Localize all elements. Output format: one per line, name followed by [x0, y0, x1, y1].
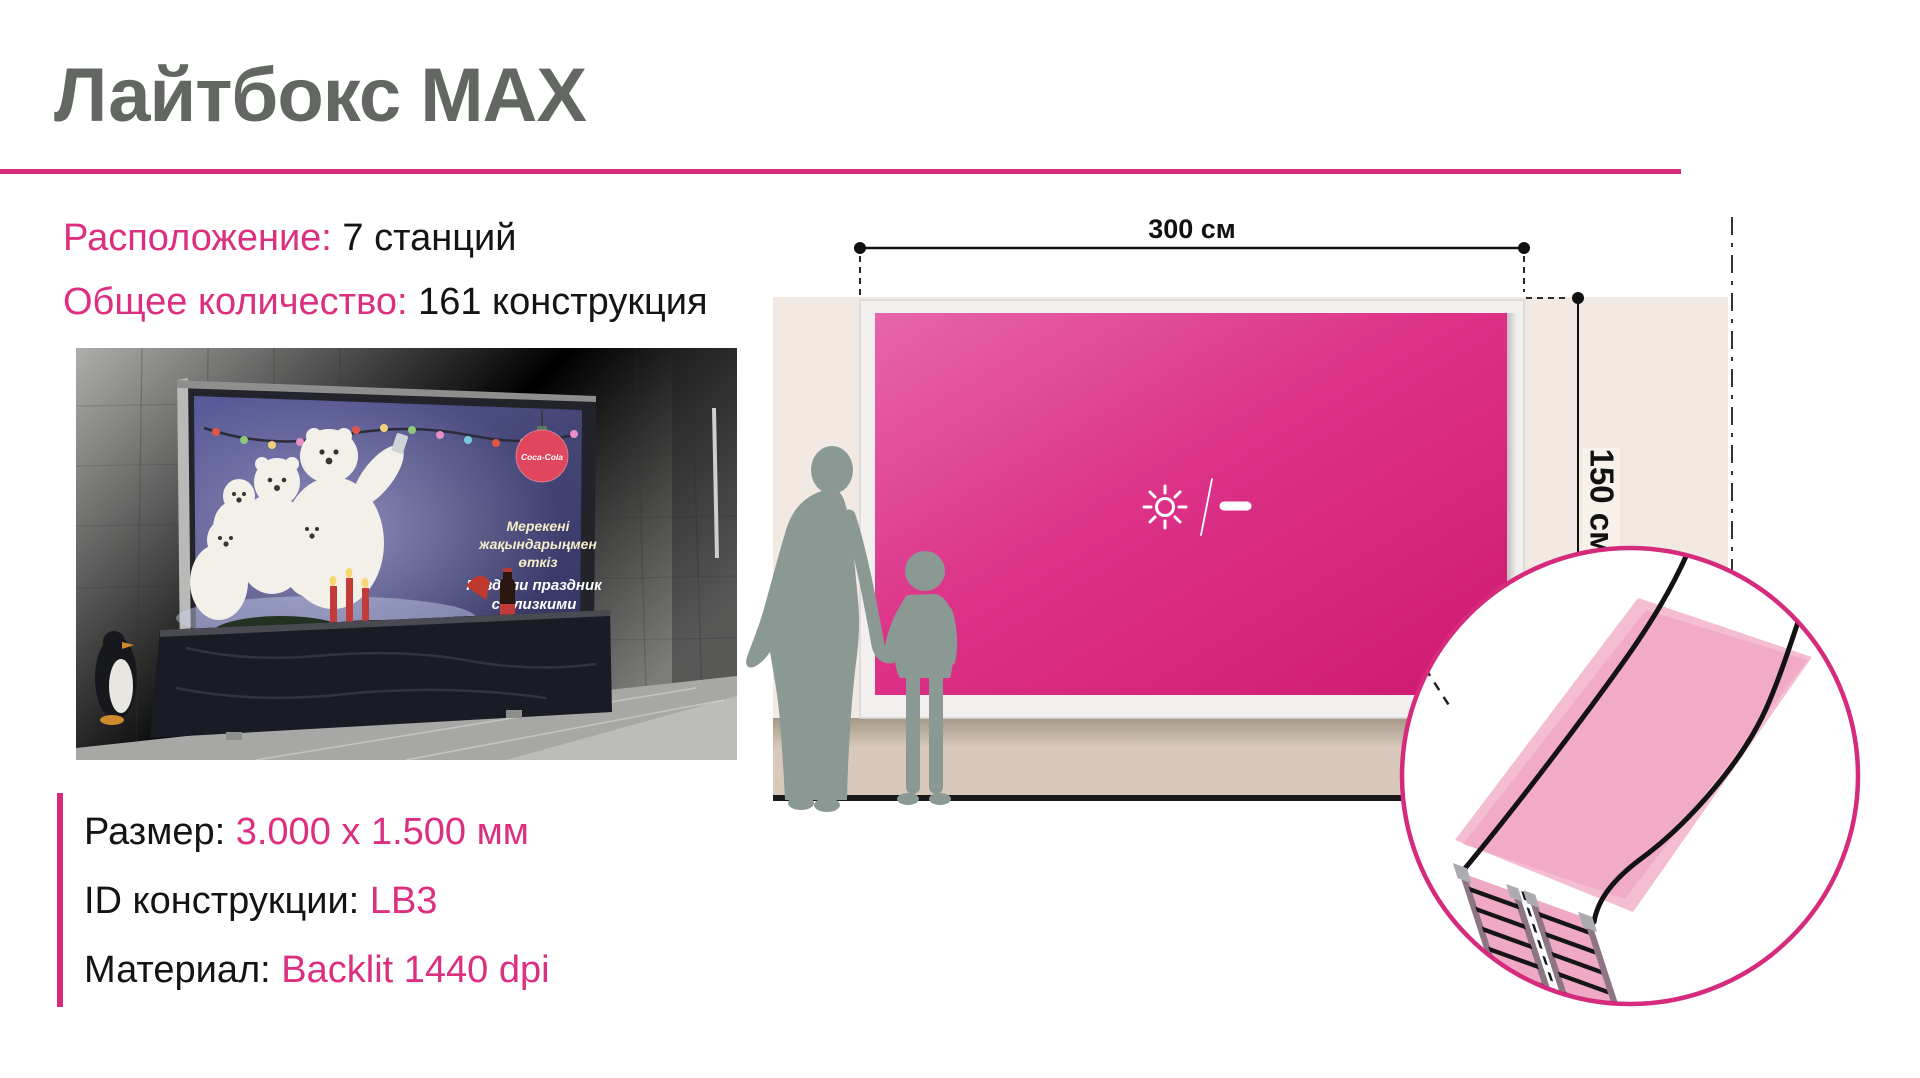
height-dimension-label: 150 см: [1583, 449, 1620, 556]
width-dimension-label: 300 см: [1148, 214, 1236, 244]
detail-circle: [1402, 548, 1858, 1078]
width-dimension: [854, 242, 1530, 298]
lightbox-diagram: 300 см 150 см: [0, 0, 1920, 1078]
lightbox-screen: [875, 313, 1507, 695]
slide: Лайтбокс MAX Расположение: 7 станций Общ…: [0, 0, 1920, 1078]
